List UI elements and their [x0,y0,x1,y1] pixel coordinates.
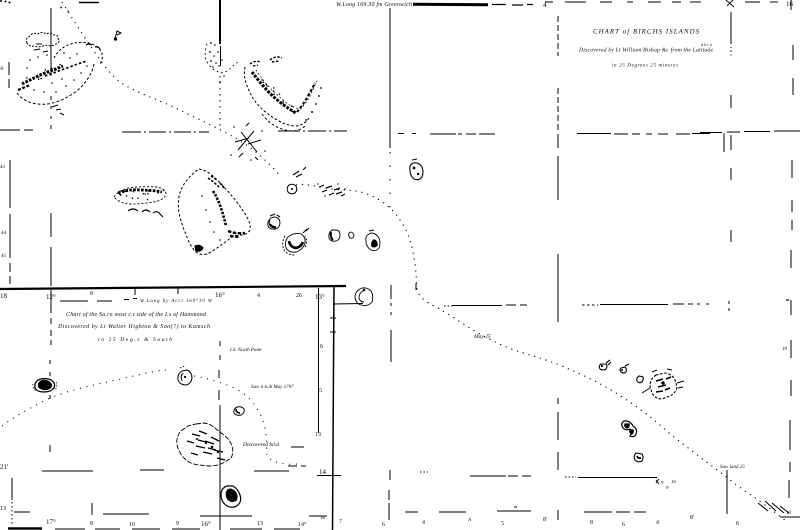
svg-text:I.S. North Point: I.S. North Point [229,347,262,353]
svg-text:May 25: May 25 [473,334,491,340]
svg-text:5: 5 [319,388,322,394]
svg-text:16: 16 [786,0,794,8]
svg-text:13°: 13° [315,293,325,301]
svg-text:16°: 16° [201,520,211,528]
svg-text:4: 4 [543,1,547,9]
svg-text:4: 4 [257,293,260,299]
svg-text:8: 8 [90,291,93,297]
svg-text:W.Long by Acct 169°30 W: W.Long by Acct 169°30 W [140,298,213,304]
svg-text:6: 6 [382,522,385,528]
svg-text:8': 8' [690,515,694,521]
svg-text:13: 13 [257,521,263,527]
svg-text:13: 13 [0,506,6,512]
svg-text:6: 6 [622,522,625,528]
svg-text:16°: 16° [215,291,225,299]
svg-text:14°: 14° [298,522,307,528]
svg-text:8: 8 [90,521,93,527]
svg-text:45: 45 [1,253,7,259]
svg-text:17°: 17° [46,518,56,526]
svg-text:in 25 Degrees 25 minutes: in 25 Degrees 25 minutes [612,63,678,69]
svg-text:W.Long 169.30 fm Greenwich: W.Long 169.30 fm Greenwich [336,1,412,8]
svg-text:in 25 Deg.s & South: in 25 Deg.s & South [98,337,172,343]
svg-text:16: 16 [671,479,676,485]
svg-text:10: 10 [782,346,788,352]
svg-text:6: 6 [736,521,739,527]
svg-text:14: 14 [319,468,327,476]
svg-text:7: 7 [339,519,342,525]
svg-text:8: 8 [590,520,593,526]
svg-text:10: 10 [786,510,792,516]
svg-text:4: 4 [656,520,659,526]
svg-text:13: 13 [315,432,321,438]
svg-text:44: 44 [1,230,7,236]
svg-text:16: 16 [320,515,326,521]
svg-text:9: 9 [176,521,179,527]
svg-text:d.h.i. n: d.h.i. n [701,42,712,47]
svg-text:Saw it 6.th May 1797: Saw it 6.th May 1797 [251,384,294,390]
svg-text:43: 43 [0,164,6,170]
svg-text:26: 26 [296,293,302,299]
svg-text:8': 8' [543,517,547,523]
svg-text:Discovered Isl.d: Discovered Isl.d [242,442,279,448]
svg-text:4: 4 [0,66,3,72]
svg-text:Discovered by Lt William Bisho: Discovered by Lt William Bishop &c from … [578,48,713,54]
svg-text:Chart of the So.rn most c.t si: Chart of the So.rn most c.t side of the … [66,311,207,318]
svg-text:Saw land 25: Saw land 25 [720,464,745,470]
svg-text:Discovered by Lt Walter Highto: Discovered by Lt Walter Highton & Son(?)… [57,323,210,330]
svg-text:21': 21' [0,463,8,471]
svg-text:10: 10 [129,522,135,528]
svg-text:18: 18 [0,292,8,300]
svg-text:5: 5 [501,521,504,527]
svg-text:CHART of BIRCHS ISLANDS: CHART of BIRCHS ISLANDS [593,29,700,36]
svg-text:4: 4 [422,520,425,526]
svg-text:6: 6 [320,344,323,350]
